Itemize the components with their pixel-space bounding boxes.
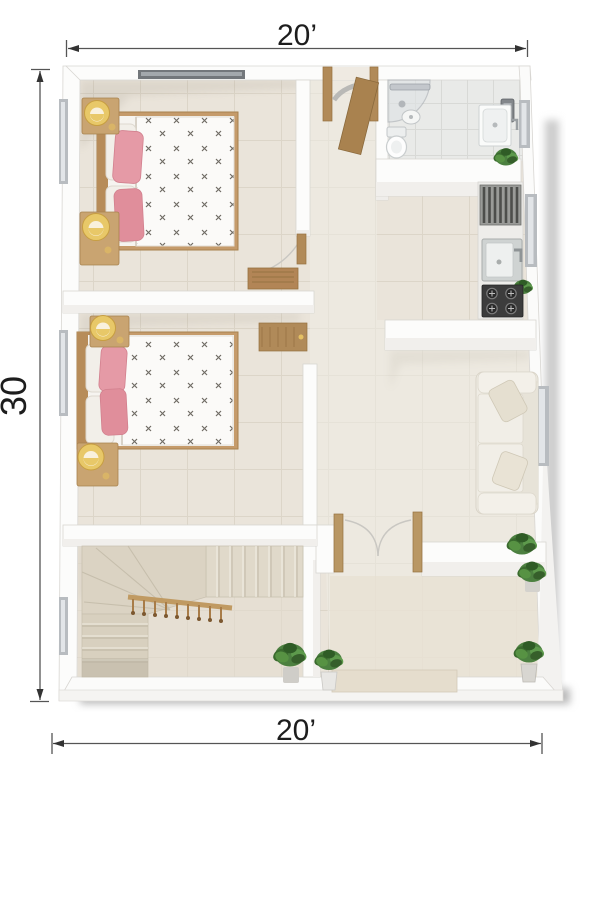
svg-text:30: 30 [0,376,34,416]
svg-text:20’: 20’ [276,714,316,747]
svg-text:20’: 20’ [277,19,317,52]
